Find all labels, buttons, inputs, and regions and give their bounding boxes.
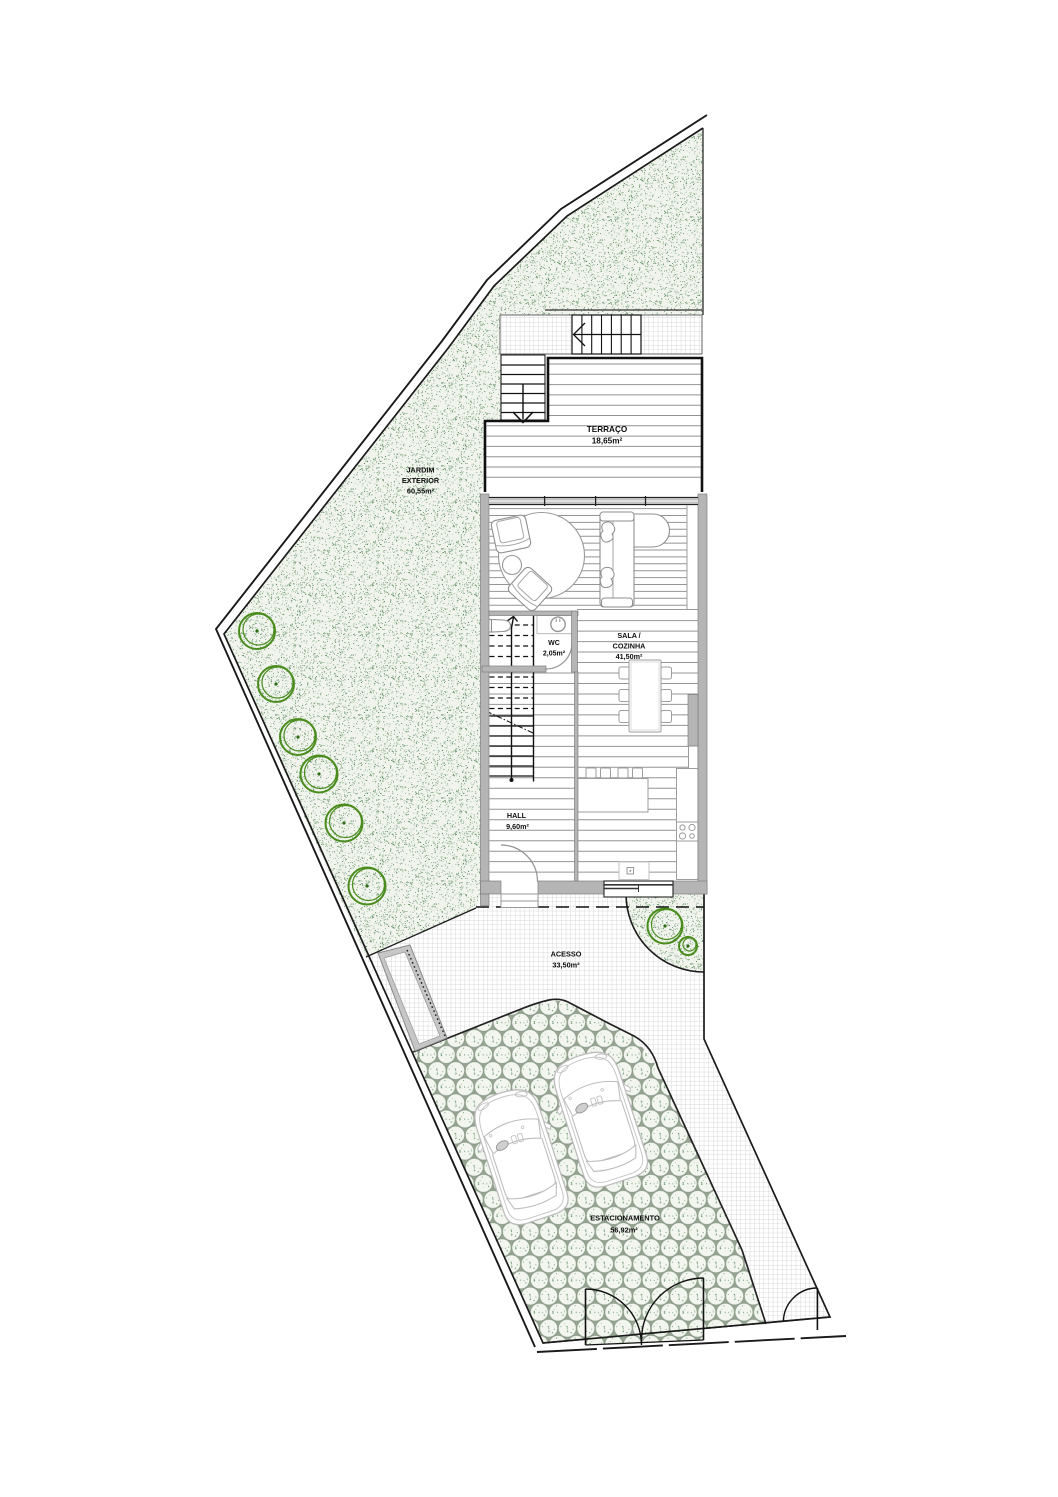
svg-text:EXTERIOR: EXTERIOR	[402, 476, 440, 485]
svg-text:JARDIM: JARDIM	[407, 466, 435, 475]
svg-text:41,50m²: 41,50m²	[616, 652, 643, 661]
svg-text:18,65m²: 18,65m²	[592, 437, 623, 446]
svg-text:SALA /: SALA /	[617, 631, 640, 640]
svg-text:ACESSO: ACESSO	[551, 950, 582, 959]
svg-text:COZINHA: COZINHA	[613, 642, 646, 651]
svg-text:HALL: HALL	[507, 811, 527, 820]
svg-text:TERRAÇO: TERRAÇO	[587, 425, 628, 434]
svg-text:60,55m²: 60,55m²	[407, 487, 435, 496]
svg-text:9,60m²: 9,60m²	[506, 822, 529, 831]
svg-text:56,92m²: 56,92m²	[610, 1226, 638, 1235]
svg-text:2,05m²: 2,05m²	[543, 651, 566, 658]
svg-text:WC: WC	[548, 640, 560, 647]
svg-text:33,50m²: 33,50m²	[552, 961, 580, 970]
svg-text:ESTACIONAMENTO: ESTACIONAMENTO	[590, 1214, 660, 1223]
